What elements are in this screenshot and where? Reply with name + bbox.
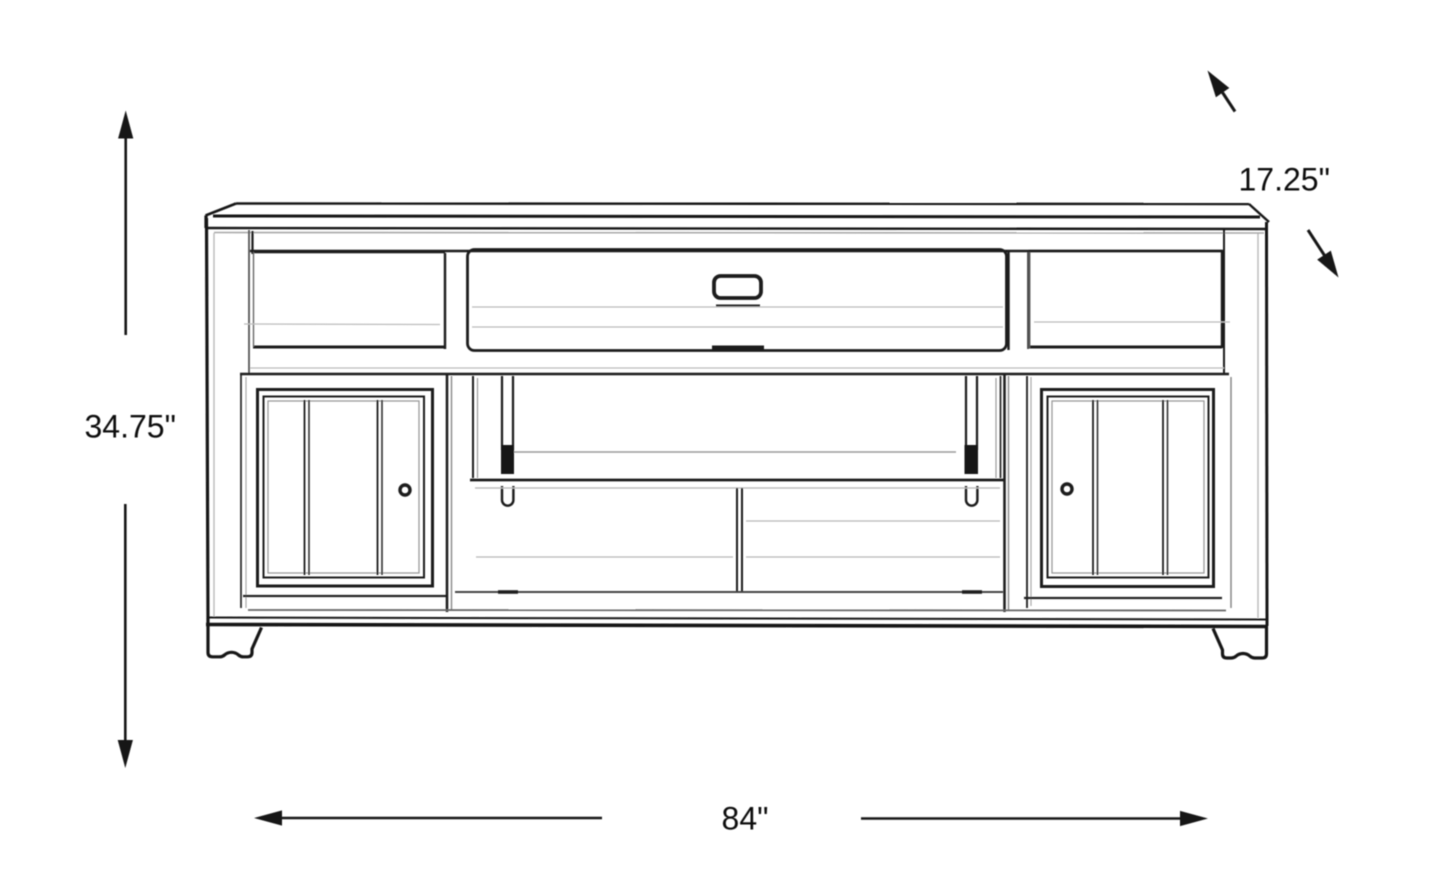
svg-text:84": 84" [722, 801, 769, 837]
svg-text:17.25": 17.25" [1239, 162, 1330, 198]
svg-text:34.75": 34.75" [85, 409, 176, 445]
